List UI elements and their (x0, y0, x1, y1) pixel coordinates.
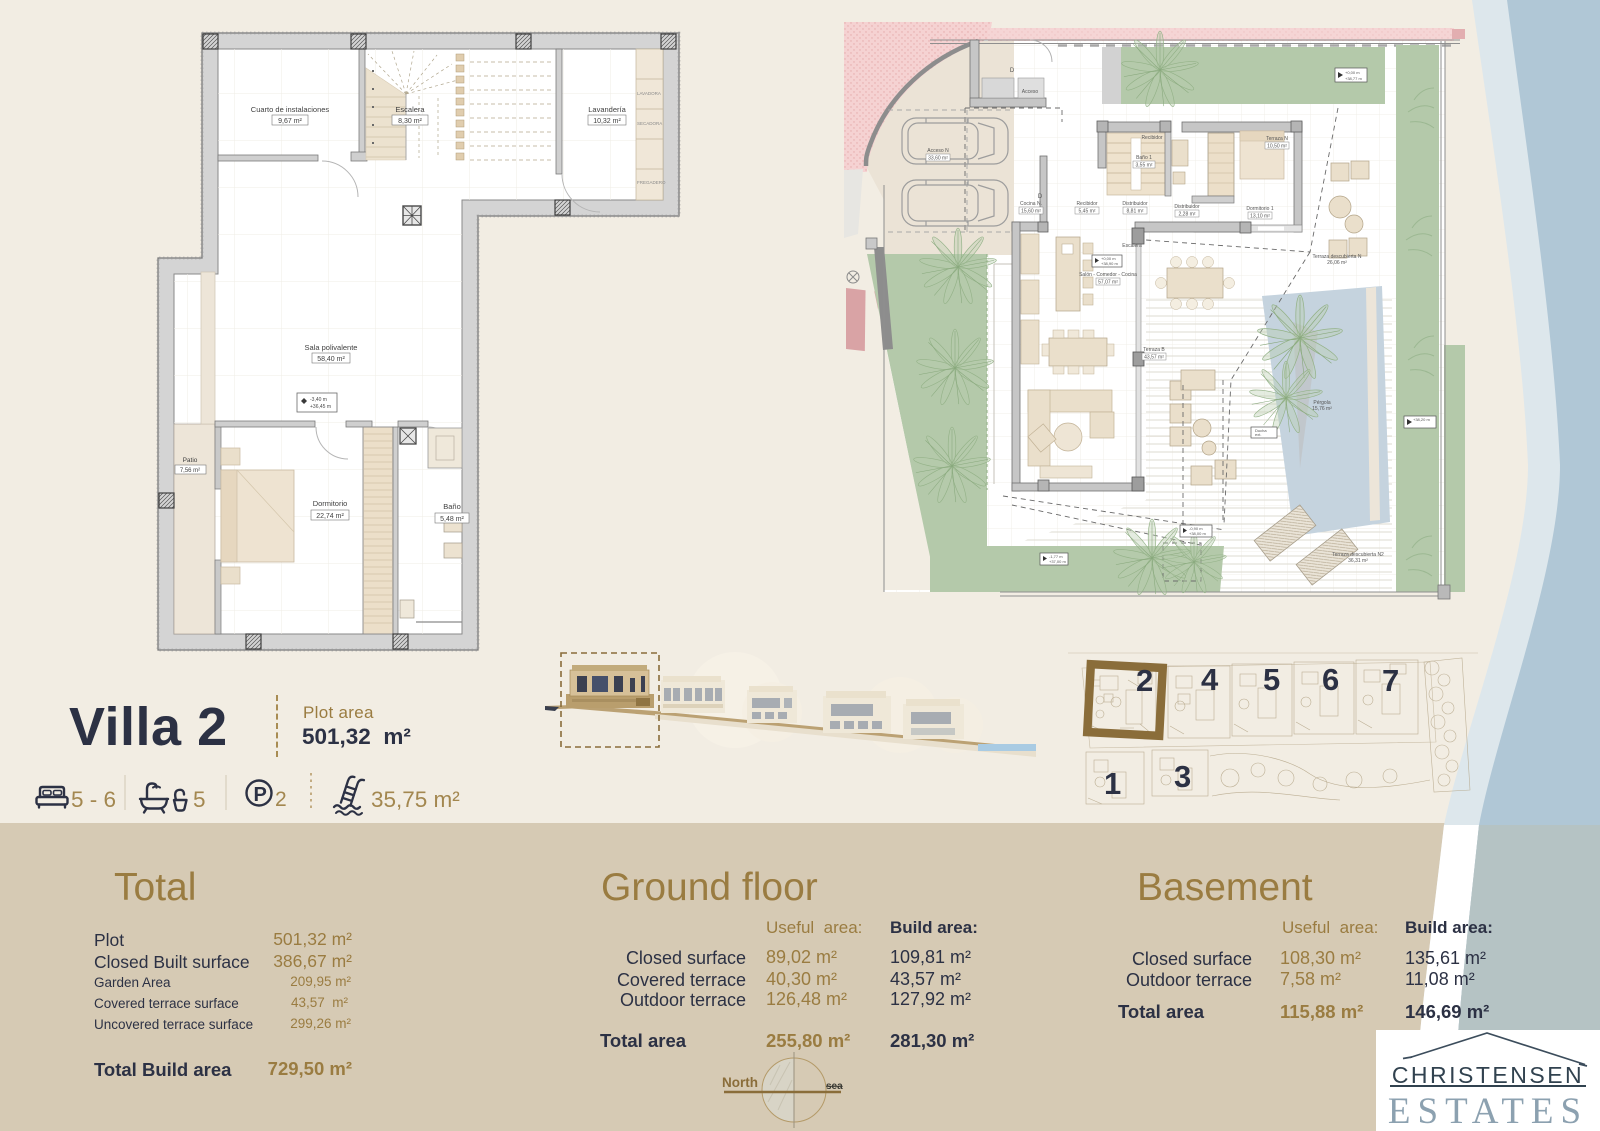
svg-text:North: North (722, 1075, 758, 1090)
svg-text:sea: sea (826, 1081, 843, 1092)
